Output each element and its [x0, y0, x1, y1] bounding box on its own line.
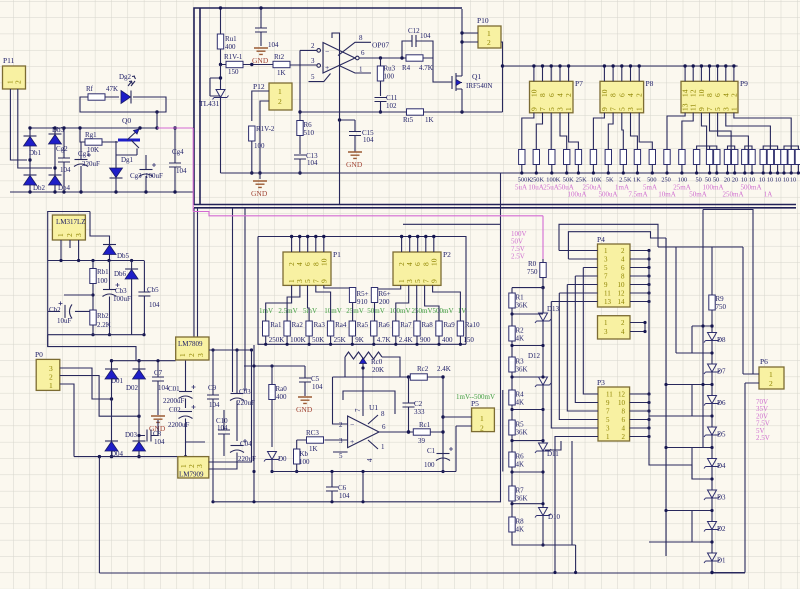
svg-text:10: 10	[618, 281, 626, 289]
svg-text:50K: 50K	[312, 336, 324, 344]
svg-text:10: 10	[319, 258, 328, 266]
svg-text:3: 3	[626, 107, 635, 111]
svg-text:2.4K: 2.4K	[437, 365, 451, 373]
svg-text:LM7909: LM7909	[179, 471, 204, 479]
svg-text:D6: D6	[717, 399, 726, 407]
svg-text:1: 1	[487, 29, 491, 38]
svg-text:Ra1: Ra1	[270, 321, 282, 329]
svg-text:Db2: Db2	[33, 184, 46, 192]
svg-text:104: 104	[60, 166, 71, 174]
svg-text:Rc2: Rc2	[417, 365, 429, 373]
svg-text:Dg1: Dg1	[121, 156, 134, 164]
svg-text:333: 333	[414, 408, 425, 416]
svg-text:20: 20	[732, 177, 738, 184]
svg-text:Ra10: Ra10	[465, 321, 480, 329]
svg-text:50: 50	[713, 177, 719, 184]
svg-text:2: 2	[480, 424, 484, 433]
svg-text:4: 4	[366, 458, 374, 462]
svg-text:910: 910	[357, 298, 368, 306]
svg-text:2200uF: 2200uF	[163, 397, 185, 405]
svg-text:Ra8: Ra8	[422, 321, 434, 329]
svg-text:250K: 250K	[269, 336, 285, 344]
svg-text:100K: 100K	[546, 177, 560, 184]
svg-text:2: 2	[564, 93, 573, 97]
svg-text:1: 1	[635, 107, 644, 111]
svg-text:102: 102	[386, 102, 397, 110]
svg-text:10: 10	[783, 177, 789, 184]
svg-text:250mA: 250mA	[723, 191, 744, 199]
svg-text:D10: D10	[548, 513, 561, 521]
svg-text:2: 2	[635, 93, 644, 97]
svg-text:GND: GND	[346, 160, 363, 169]
svg-text:12: 12	[618, 290, 626, 298]
svg-text:10: 10	[618, 399, 626, 407]
svg-text:Cb3: Cb3	[115, 287, 127, 295]
svg-text:36K: 36K	[516, 366, 528, 374]
svg-text:750: 750	[527, 268, 538, 276]
svg-text:500mV: 500mV	[433, 307, 454, 315]
svg-text:100K: 100K	[290, 336, 306, 344]
svg-text:50mV: 50mV	[367, 307, 385, 315]
svg-text:1: 1	[359, 66, 363, 74]
svg-text:Db6: Db6	[114, 270, 127, 278]
svg-text:25uA: 25uA	[543, 184, 559, 192]
svg-text:2.5mV: 2.5mV	[278, 307, 297, 315]
svg-text:4: 4	[621, 256, 625, 264]
svg-text:3: 3	[196, 353, 205, 357]
svg-text:500: 500	[647, 177, 656, 184]
svg-text:Q1: Q1	[472, 72, 481, 81]
svg-text:10mA: 10mA	[658, 191, 676, 199]
svg-text:1V: 1V	[458, 307, 467, 315]
svg-text:2: 2	[622, 433, 626, 441]
svg-text:50K: 50K	[563, 177, 574, 184]
svg-text:6: 6	[621, 264, 625, 272]
svg-text:500mA: 500mA	[741, 184, 762, 192]
svg-text:Ra6: Ra6	[378, 321, 390, 329]
svg-text:25mA: 25mA	[673, 184, 691, 192]
svg-text:6: 6	[547, 93, 556, 97]
svg-text:104: 104	[363, 136, 374, 144]
svg-text:100: 100	[254, 142, 265, 150]
svg-text:3: 3	[604, 328, 608, 336]
svg-text:4.7K: 4.7K	[419, 64, 433, 72]
svg-text:500uA: 500uA	[598, 191, 617, 199]
svg-text:Cg2: Cg2	[56, 145, 68, 153]
svg-text:2200uF: 2200uF	[168, 421, 190, 429]
svg-text:100uF: 100uF	[145, 172, 163, 180]
svg-text:8: 8	[359, 34, 363, 42]
svg-text:2: 2	[187, 353, 196, 357]
svg-text:Ra4: Ra4	[335, 321, 347, 329]
svg-text:R7: R7	[516, 487, 525, 495]
svg-text:GND: GND	[252, 56, 269, 65]
svg-text:P3: P3	[597, 378, 605, 387]
svg-text:400: 400	[442, 336, 453, 344]
svg-text:104: 104	[176, 167, 187, 175]
svg-text:U1: U1	[369, 403, 378, 412]
svg-text:10: 10	[741, 177, 747, 184]
svg-text:1: 1	[480, 414, 484, 423]
svg-text:2: 2	[769, 379, 773, 388]
svg-text:R5+: R5+	[357, 290, 369, 298]
svg-text:2: 2	[65, 233, 74, 237]
svg-text:1: 1	[606, 433, 610, 441]
svg-text:+: +	[325, 63, 329, 72]
svg-text:9: 9	[606, 399, 610, 407]
svg-text:R3: R3	[516, 358, 525, 366]
svg-text:Dg2: Dg2	[119, 73, 132, 81]
svg-text:8: 8	[538, 93, 547, 97]
svg-text:900: 900	[420, 336, 431, 344]
svg-text:D01: D01	[111, 377, 124, 385]
svg-text:P0: P0	[35, 350, 43, 359]
svg-text:20: 20	[724, 177, 730, 184]
svg-text:47K: 47K	[106, 85, 118, 93]
svg-text:3: 3	[604, 256, 608, 264]
svg-text:Ru3: Ru3	[384, 65, 396, 73]
svg-text:4: 4	[622, 425, 626, 433]
svg-text:D03: D03	[125, 431, 138, 439]
svg-text:250mV: 250mV	[412, 307, 433, 315]
svg-text:10: 10	[749, 177, 755, 184]
svg-text:LM7809: LM7809	[178, 340, 203, 348]
svg-text:1: 1	[729, 107, 738, 111]
svg-text:P9: P9	[740, 79, 748, 88]
svg-text:400: 400	[225, 43, 236, 51]
svg-text:Ra5: Ra5	[357, 321, 369, 329]
svg-text:Cb5: Cb5	[147, 286, 159, 294]
svg-text:Rc0: Rc0	[371, 358, 383, 366]
svg-text:P4: P4	[597, 235, 605, 244]
svg-text:Rg1: Rg1	[85, 131, 97, 139]
svg-text:C5: C5	[311, 375, 320, 383]
svg-text:12: 12	[618, 391, 626, 399]
svg-text:9K: 9K	[355, 336, 364, 344]
svg-text:D2: D2	[717, 525, 726, 533]
svg-text:R4: R4	[516, 391, 525, 399]
svg-text:3: 3	[606, 425, 610, 433]
svg-text:R1V-2: R1V-2	[256, 125, 275, 133]
svg-text:9: 9	[600, 107, 609, 111]
svg-text:Rf: Rf	[86, 85, 94, 93]
svg-text:20K: 20K	[372, 366, 384, 374]
svg-text:2.5V: 2.5V	[756, 434, 770, 442]
svg-text:D8: D8	[717, 336, 726, 344]
svg-text:10: 10	[759, 177, 765, 184]
svg-text:100uF: 100uF	[113, 295, 131, 303]
svg-text:2: 2	[729, 93, 738, 97]
svg-text:7: 7	[609, 107, 618, 111]
svg-text:10uA: 10uA	[528, 184, 544, 192]
svg-text:R9: R9	[716, 295, 725, 303]
svg-text:LM317LZ: LM317LZ	[56, 218, 86, 226]
svg-text:D1: D1	[717, 557, 726, 565]
svg-text:104: 104	[339, 492, 350, 500]
svg-text:50: 50	[695, 177, 701, 184]
svg-text:1K: 1K	[277, 69, 286, 77]
svg-text:D0: D0	[278, 455, 287, 463]
svg-text:+: +	[350, 437, 354, 446]
svg-text:36K: 36K	[516, 429, 528, 437]
svg-text:1: 1	[49, 381, 53, 390]
svg-text:Ra3: Ra3	[314, 321, 326, 329]
svg-text:C04: C04	[240, 440, 252, 448]
svg-text:2.5K: 2.5K	[619, 177, 632, 184]
svg-text:7: 7	[538, 107, 547, 111]
svg-text:1: 1	[564, 107, 573, 111]
svg-text:8: 8	[621, 273, 625, 281]
svg-text:C02: C02	[169, 406, 181, 414]
svg-text:Q0: Q0	[122, 116, 131, 125]
svg-text:R1: R1	[516, 294, 525, 302]
svg-text:R2: R2	[516, 327, 525, 335]
svg-text:10: 10	[790, 177, 796, 184]
svg-text:Cg1: Cg1	[78, 150, 90, 158]
svg-text:D4: D4	[717, 462, 726, 470]
svg-text:R6: R6	[304, 121, 313, 129]
svg-text:IRF540N: IRF540N	[466, 82, 492, 90]
svg-text:4: 4	[626, 93, 635, 97]
svg-text:104: 104	[154, 438, 165, 446]
svg-text:R8: R8	[516, 518, 525, 526]
svg-text:100uA: 100uA	[567, 191, 586, 199]
svg-text:7: 7	[606, 408, 610, 416]
svg-text:14: 14	[618, 298, 626, 306]
svg-text:R4: R4	[402, 64, 411, 72]
svg-text:50mA: 50mA	[689, 191, 707, 199]
svg-text:Rt2: Rt2	[274, 53, 285, 61]
svg-text:5: 5	[547, 107, 556, 111]
svg-text:P10: P10	[477, 16, 489, 25]
svg-text:100: 100	[299, 458, 310, 466]
svg-text:11: 11	[606, 391, 613, 399]
svg-text:5: 5	[617, 107, 626, 111]
svg-text:5uA: 5uA	[515, 184, 527, 192]
svg-text:C8: C8	[153, 430, 162, 438]
svg-text:6: 6	[361, 49, 365, 57]
svg-text:5: 5	[604, 264, 608, 272]
svg-text:1K: 1K	[309, 445, 318, 453]
svg-text:Cg3: Cg3	[130, 172, 142, 180]
svg-text:10: 10	[600, 89, 609, 97]
svg-text:36K: 36K	[516, 495, 528, 503]
svg-text:Kb: Kb	[300, 450, 309, 458]
svg-text:11: 11	[604, 290, 611, 298]
svg-text:104: 104	[307, 159, 318, 167]
svg-text:GND: GND	[296, 405, 313, 414]
svg-text:220uF: 220uF	[82, 160, 100, 168]
svg-text:7: 7	[354, 408, 362, 412]
svg-text:2: 2	[487, 38, 491, 47]
svg-text:D7: D7	[717, 368, 726, 376]
svg-text:104: 104	[217, 424, 228, 432]
svg-text:4.7K: 4.7K	[377, 336, 391, 344]
svg-text:C6: C6	[338, 484, 347, 492]
svg-text:250K: 250K	[530, 177, 544, 184]
svg-text:1: 1	[769, 370, 773, 379]
svg-text:5: 5	[606, 416, 610, 424]
svg-text:6: 6	[622, 416, 626, 424]
svg-text:2: 2	[339, 421, 343, 429]
svg-text:C9: C9	[208, 384, 217, 392]
svg-text:104: 104	[312, 383, 323, 391]
svg-text:5mV: 5mV	[303, 307, 317, 315]
svg-text:1K: 1K	[425, 116, 434, 124]
svg-text:10mV: 10mV	[324, 307, 342, 315]
svg-text:D13: D13	[547, 305, 560, 313]
svg-text:5K: 5K	[606, 177, 614, 184]
svg-text:5: 5	[339, 452, 343, 460]
svg-text:Rc1: Rc1	[419, 421, 431, 429]
svg-text:36K: 36K	[516, 302, 528, 310]
svg-text:10K: 10K	[591, 177, 602, 184]
svg-text:100mV: 100mV	[390, 307, 411, 315]
svg-text:100: 100	[424, 461, 435, 469]
svg-text:C01: C01	[168, 385, 180, 393]
svg-text:10: 10	[767, 177, 773, 184]
svg-text:100: 100	[384, 73, 395, 81]
svg-text:R6: R6	[516, 453, 525, 461]
svg-text:150: 150	[228, 68, 239, 76]
svg-text:25K: 25K	[334, 336, 346, 344]
svg-text:10: 10	[775, 177, 781, 184]
svg-text:Cb2: Cb2	[49, 306, 61, 314]
svg-text:100: 100	[97, 277, 108, 285]
svg-text:104: 104	[209, 401, 220, 409]
svg-text:4K: 4K	[516, 335, 525, 343]
svg-text:−: −	[325, 47, 329, 56]
svg-text:6: 6	[382, 423, 386, 431]
svg-text:P8: P8	[646, 79, 654, 88]
svg-text:1: 1	[178, 353, 187, 357]
svg-text:8: 8	[622, 408, 626, 416]
svg-text:C11: C11	[386, 94, 398, 102]
svg-text:250: 250	[661, 177, 670, 184]
svg-text:Ra7: Ra7	[400, 321, 412, 329]
svg-text:2.5V: 2.5V	[511, 253, 525, 261]
svg-text:2.4K: 2.4K	[399, 336, 413, 344]
svg-text:C2: C2	[414, 400, 423, 408]
svg-text:6: 6	[617, 93, 626, 97]
svg-text:2.2K: 2.2K	[97, 321, 111, 329]
svg-text:25K: 25K	[576, 177, 587, 184]
svg-text:1: 1	[381, 443, 385, 451]
svg-text:Rt5: Rt5	[403, 116, 414, 124]
svg-text:P7: P7	[575, 79, 583, 88]
svg-text:3: 3	[195, 464, 204, 468]
svg-text:25mV: 25mV	[346, 307, 364, 315]
svg-text:4: 4	[621, 328, 625, 336]
svg-text:5: 5	[311, 73, 315, 81]
svg-text:8: 8	[381, 410, 385, 418]
svg-text:P1: P1	[333, 250, 341, 259]
svg-text:1: 1	[278, 87, 282, 96]
svg-text:C1: C1	[427, 447, 436, 455]
svg-text:P11: P11	[3, 56, 15, 65]
svg-text:Rb1: Rb1	[97, 268, 109, 276]
svg-text:400: 400	[276, 393, 287, 401]
svg-text:200: 200	[379, 298, 390, 306]
svg-text:150: 150	[463, 336, 474, 344]
svg-text:R5: R5	[516, 421, 525, 429]
svg-text:1: 1	[604, 319, 608, 327]
svg-text:Ra0: Ra0	[276, 385, 288, 393]
svg-text:2: 2	[621, 319, 625, 327]
svg-text:9: 9	[604, 281, 608, 289]
svg-text:1mV--500mV: 1mV--500mV	[456, 393, 495, 401]
svg-text:TL431: TL431	[199, 99, 220, 108]
svg-text:9: 9	[429, 279, 438, 283]
svg-text:510: 510	[304, 129, 315, 137]
svg-text:220uF: 220uF	[237, 399, 255, 407]
svg-text:7.5mA: 7.5mA	[628, 191, 647, 199]
svg-text:RC3: RC3	[306, 429, 319, 437]
svg-text:Db5: Db5	[117, 252, 130, 260]
svg-text:P12: P12	[253, 82, 265, 91]
svg-text:13: 13	[604, 298, 612, 306]
svg-text:OP07: OP07	[372, 41, 389, 50]
svg-text:D12: D12	[528, 352, 541, 360]
svg-text:4K: 4K	[516, 526, 525, 534]
svg-text:3: 3	[74, 233, 83, 237]
svg-text:R1V-1: R1V-1	[224, 53, 243, 61]
svg-text:Ra9: Ra9	[444, 321, 456, 329]
svg-text:Cg4: Cg4	[172, 148, 184, 156]
svg-text:D02: D02	[126, 384, 139, 392]
svg-text:104: 104	[420, 32, 431, 40]
svg-text:D5: D5	[717, 431, 726, 439]
svg-text:3: 3	[311, 57, 315, 65]
svg-text:Rb2: Rb2	[97, 312, 109, 320]
svg-text:10: 10	[429, 258, 438, 266]
svg-text:2: 2	[621, 247, 625, 255]
svg-text:Ra2: Ra2	[292, 321, 304, 329]
svg-text:104: 104	[149, 301, 160, 309]
svg-text:104: 104	[268, 41, 279, 49]
svg-text:GND: GND	[251, 189, 268, 198]
svg-text:1: 1	[56, 233, 65, 237]
svg-text:C12: C12	[408, 27, 420, 35]
svg-text:D3: D3	[717, 494, 726, 502]
svg-text:750: 750	[716, 303, 727, 311]
svg-text:100: 100	[678, 177, 687, 184]
svg-text:2: 2	[278, 97, 282, 106]
svg-text:3: 3	[339, 437, 343, 445]
svg-text:R6+: R6+	[379, 290, 391, 298]
svg-text:4K: 4K	[516, 399, 525, 407]
svg-text:Ru1: Ru1	[225, 35, 237, 43]
svg-text:1: 1	[604, 247, 608, 255]
svg-text:39: 39	[418, 437, 426, 445]
svg-text:R0: R0	[528, 260, 537, 268]
svg-text:4K: 4K	[516, 461, 525, 469]
svg-text:−: −	[350, 420, 354, 429]
svg-text:1K: 1K	[633, 177, 641, 184]
svg-text:8: 8	[609, 93, 618, 97]
svg-text:Db1: Db1	[29, 149, 42, 157]
svg-text:2: 2	[14, 80, 23, 84]
svg-text:7: 7	[604, 273, 608, 281]
svg-text:9: 9	[319, 279, 328, 283]
svg-text:1A: 1A	[764, 191, 773, 199]
svg-text:50: 50	[705, 177, 711, 184]
svg-text:2: 2	[311, 42, 315, 50]
svg-text:10uF: 10uF	[57, 317, 72, 325]
svg-text:D11: D11	[547, 450, 559, 458]
svg-text:P2: P2	[443, 250, 451, 259]
svg-text:P6: P6	[760, 357, 768, 366]
